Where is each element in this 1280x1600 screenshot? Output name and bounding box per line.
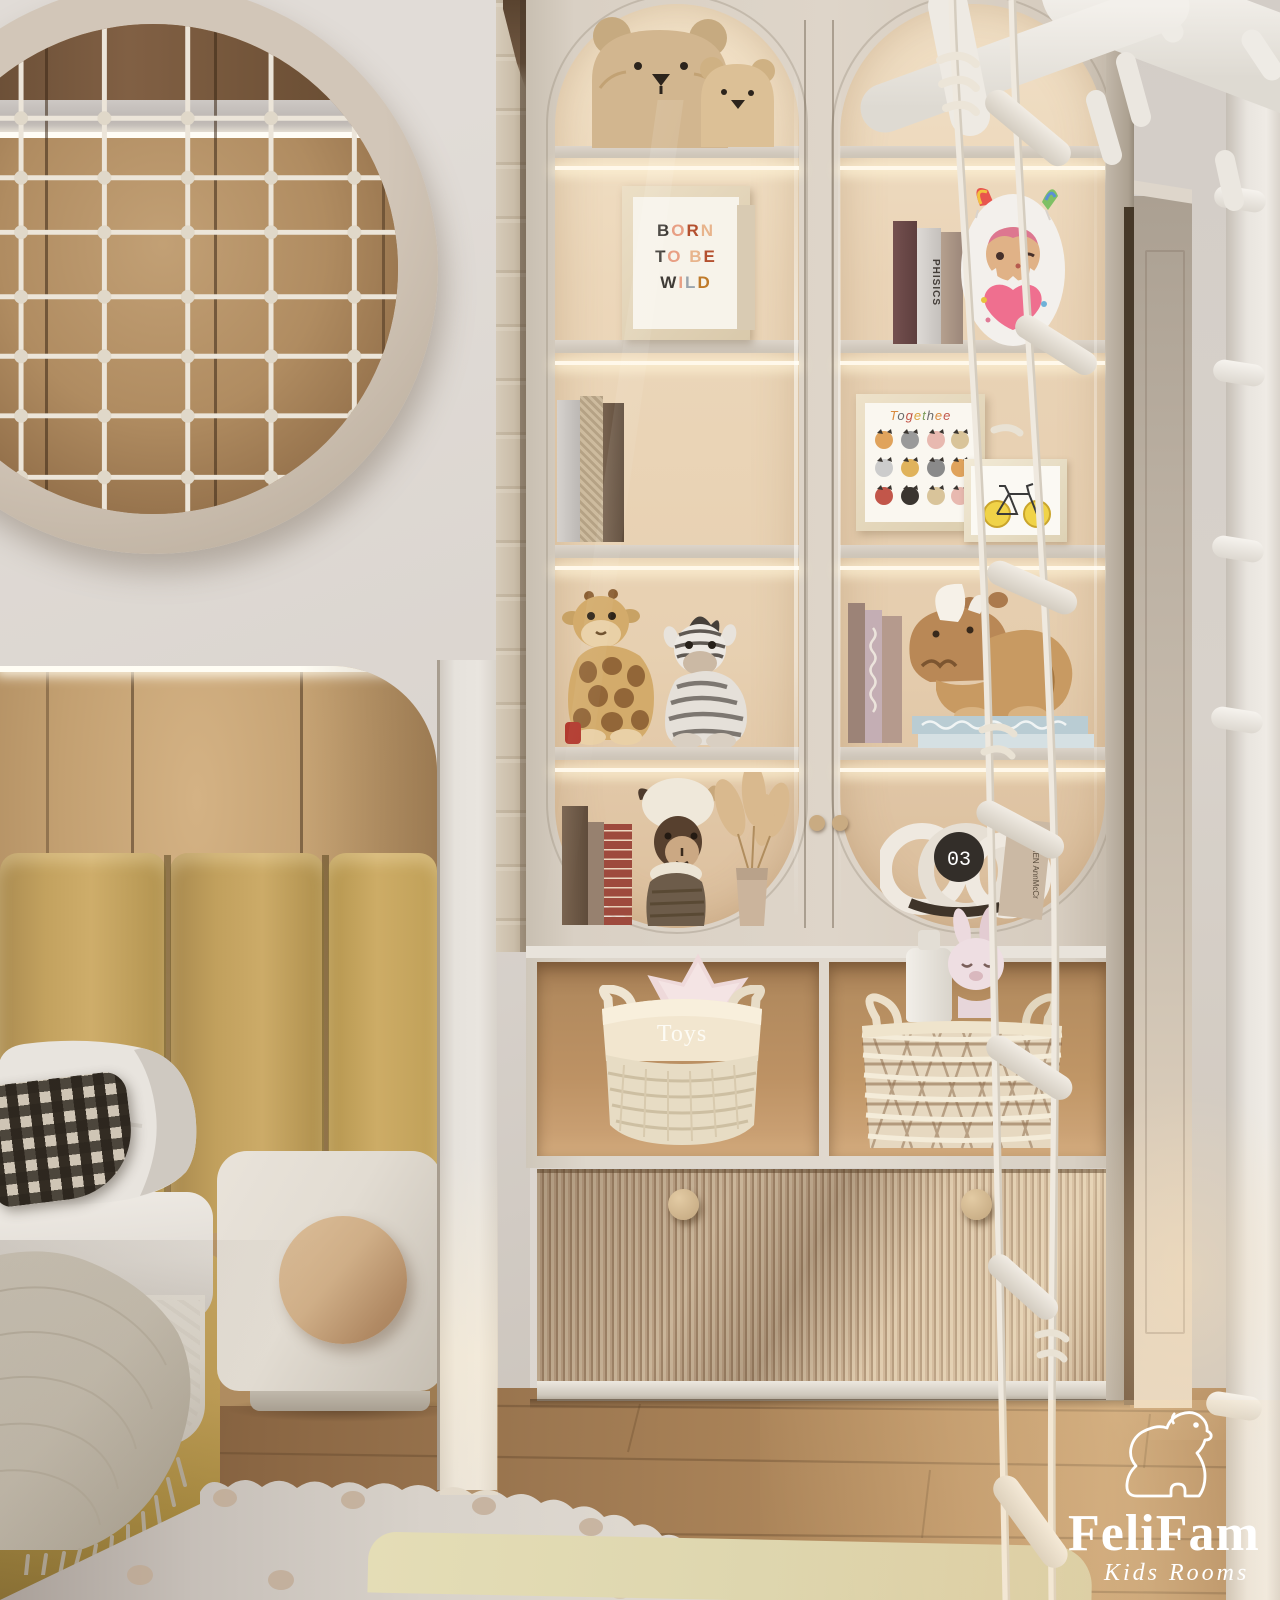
svg-text:Toys: Toys xyxy=(657,1021,707,1047)
